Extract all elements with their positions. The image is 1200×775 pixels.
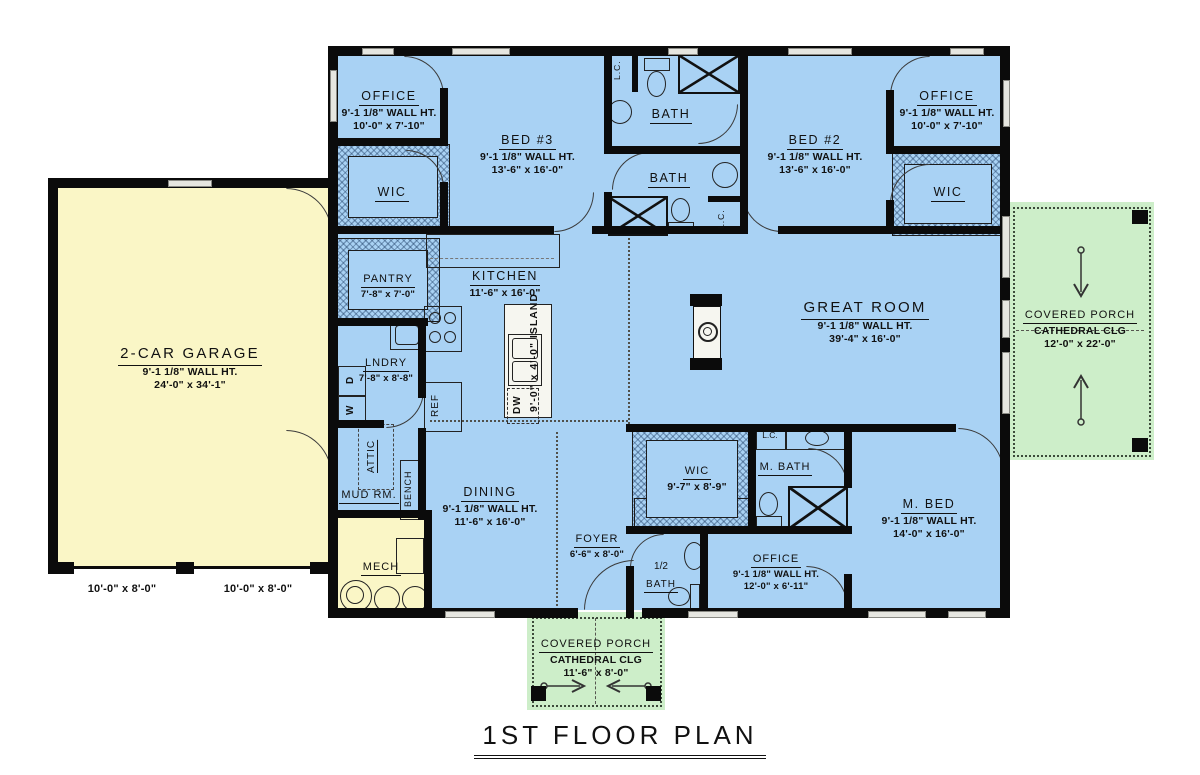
- room-wall-height: 9'-1 1/8" WALL HT.: [888, 107, 1006, 121]
- wall-halfbath-office: [700, 534, 708, 618]
- porch-arrow-up: [1070, 372, 1092, 426]
- wall-lc-lower: [708, 196, 748, 202]
- room-wall-height: 9'-1 1/8" WALL HT.: [710, 569, 842, 581]
- garage-door-dims: 10'-0" x 8'-0": [198, 582, 318, 596]
- sink: [805, 430, 829, 446]
- window: [868, 611, 926, 618]
- room-name: BATH: [650, 106, 693, 124]
- burner: [429, 312, 441, 324]
- shower: [678, 54, 740, 94]
- dishwasher-label: DW: [512, 390, 523, 420]
- garage-label: 2-CAR GARAGE 9'-1 1/8" WALL HT. 24'-0" x…: [90, 344, 290, 393]
- toilet: [644, 58, 668, 98]
- window: [688, 611, 738, 618]
- room-dims: 7'-8" x 7'-0": [340, 289, 436, 301]
- water-heater-inner: [346, 586, 364, 604]
- garage-door-right-label: 10'-0" x 8'-0": [198, 582, 318, 596]
- burner: [444, 331, 456, 343]
- room-name: M. BED: [901, 496, 958, 514]
- room-name: WIC: [375, 184, 408, 202]
- master-bed-label: M. BED 9'-1 1/8" WALL HT. 14'-0" x 16'-0…: [856, 494, 1002, 542]
- garage-door-dims: 10'-0" x 8'-0": [62, 582, 182, 596]
- wall-laundry-bottom: [328, 420, 384, 428]
- room-dims: 14'-0" x 16'-0": [856, 528, 1002, 542]
- lc-text: L.C.: [754, 430, 786, 441]
- porch-arrow-down: [1070, 246, 1092, 300]
- sink-bowl: [395, 325, 419, 345]
- wall-office-tr-bottom: [886, 146, 1010, 154]
- window: [788, 48, 852, 55]
- window: [445, 611, 495, 618]
- room-name: GREAT ROOM: [801, 298, 928, 320]
- room-name: COVERED PORCH: [1023, 308, 1137, 324]
- wall-hall: [336, 226, 554, 234]
- half-bath-label: 1/2 BATH: [636, 560, 686, 594]
- room-wall-height: 9'-1 1/8" WALL HT.: [770, 320, 960, 334]
- range-stove: [424, 306, 462, 352]
- window: [948, 611, 986, 618]
- porch-post: [646, 686, 661, 701]
- office-top-left-label: OFFICE 9'-1 1/8" WALL HT. 10'-0" x 7'-10…: [336, 86, 442, 134]
- floor-plan: COVERED PORCH CATHEDRAL CLG 12'-0" x 22'…: [0, 0, 1200, 775]
- room-name: MECH: [361, 560, 401, 576]
- foyer-label: FOYER 6'-6" x 8'-0": [558, 528, 636, 561]
- room-dims: 7'-8" x 8'-8": [340, 373, 432, 385]
- porch-door: [1002, 300, 1010, 338]
- wall-pantry-bottom: [328, 318, 428, 326]
- wall-bed3-bath: [604, 192, 612, 234]
- room-wall-height: 9'-1 1/8" WALL HT.: [336, 107, 442, 121]
- room-name: OFFICE: [359, 88, 418, 106]
- fireplace: [690, 294, 722, 370]
- room-dims: 11'-6" x 16'-0": [420, 516, 560, 530]
- garage-door-post: [48, 562, 74, 574]
- garage-door-post: [310, 562, 338, 574]
- room-dims: 39'-4" x 16'-0": [770, 333, 960, 347]
- wall-master-suite-top: [626, 424, 956, 432]
- room-wall-height: 9'-1 1/8" WALL HT.: [450, 151, 605, 165]
- room-dims: 10'-0" x 7'-10": [888, 120, 1006, 134]
- room-name: COVERED PORCH: [539, 637, 653, 653]
- burner: [429, 331, 441, 343]
- bed2-label: BED #2 9'-1 1/8" WALL HT. 13'-6" x 16'-0…: [740, 130, 890, 178]
- porch-door: [1002, 216, 1010, 278]
- plan-title-wrap: 1ST FLOOR PLAN: [420, 720, 820, 759]
- room-dims: 12'-0" x 22'-0": [1014, 338, 1146, 352]
- room-dims: 24'-0" x 34'-1": [90, 379, 290, 393]
- shower: [788, 486, 848, 530]
- laundry-label: LNDRY 7'-8" x 8'-8": [340, 352, 432, 385]
- kitchen-label: KITCHEN 11'-6" x 16'-0": [430, 266, 580, 300]
- room-wall-height: 9'-1 1/8" WALL HT.: [856, 515, 1002, 529]
- office-bottom-label: OFFICE 9'-1 1/8" WALL HT. 12'-0" x 6'-11…: [710, 548, 842, 593]
- wall-master-suite-bottom: [626, 526, 852, 534]
- room-name: BATH: [648, 170, 691, 188]
- room-dims: 12'-0" x 6'-11": [710, 581, 842, 593]
- toilet-bowl: [759, 492, 778, 516]
- porch-bottom-label: COVERED PORCH CATHEDRAL CLG 11'-6" x 8'-…: [530, 633, 662, 681]
- room-name-line2: BATH: [644, 578, 678, 593]
- wall-office-tl-bottom: [328, 138, 448, 146]
- room-dims: 10'-0" x 7'-10": [336, 120, 442, 134]
- wall-wic-right: [886, 200, 894, 234]
- room-name: OFFICE: [917, 88, 976, 106]
- window: [452, 48, 510, 55]
- room-ceiling: CATHEDRAL CLG: [530, 654, 662, 668]
- fireplace-flue-inner: [703, 327, 712, 336]
- room-name: 2-CAR GARAGE: [118, 344, 262, 366]
- room-name: OFFICE: [751, 552, 801, 568]
- burner: [444, 312, 456, 324]
- room-wall-height: 9'-1 1/8" WALL HT.: [420, 503, 560, 517]
- room-name: WIC: [683, 464, 711, 480]
- wic-right-label: WIC: [898, 182, 998, 203]
- room-dims: 6'-6" x 8'-0": [558, 549, 636, 561]
- great-room-label: GREAT ROOM 9'-1 1/8" WALL HT. 39'-4" x 1…: [770, 298, 960, 347]
- porch-post: [1132, 210, 1148, 224]
- kitchen-counter: [426, 234, 560, 268]
- room-name-line1: 1/2: [636, 560, 686, 573]
- porch-post: [1132, 438, 1148, 452]
- mech-label: MECH: [346, 556, 416, 577]
- fireplace-flue: [698, 322, 718, 342]
- wall-mwic-mbath: [748, 428, 756, 530]
- room-name: PANTRY: [361, 272, 415, 288]
- fireplace-cap: [690, 294, 722, 306]
- room-name: KITCHEN: [470, 268, 540, 286]
- room-name: WIC: [931, 184, 964, 202]
- bed3-label: BED #3 9'-1 1/8" WALL HT. 13'-6" x 16'-0…: [450, 130, 605, 178]
- mud-room-label: MUD RM.: [336, 484, 402, 505]
- refrigerator-label: REF: [430, 386, 441, 426]
- bench-label: BENCH: [403, 463, 413, 515]
- room-wall-height: 9'-1 1/8" WALL HT.: [90, 366, 290, 380]
- room-ceiling: CATHEDRAL CLG: [1014, 325, 1146, 339]
- room-name: DINING: [461, 484, 518, 502]
- room-wall-height: 9'-1 1/8" WALL HT.: [740, 151, 890, 165]
- room-name: BED #3: [499, 132, 556, 150]
- garage-wall-left: [48, 178, 58, 574]
- office-top-right-label: OFFICE 9'-1 1/8" WALL HT. 10'-0" x 7'-10…: [888, 86, 1006, 134]
- porch-post: [531, 686, 546, 701]
- room-dims: 13'-6" x 16'-0": [450, 164, 605, 178]
- room-name: BED #2: [787, 132, 844, 150]
- wall-office-bottom-right: [844, 574, 852, 618]
- toilet: [756, 492, 780, 528]
- pantry-label: PANTRY 7'-8" x 7'-0": [340, 268, 436, 301]
- wall-mech-top: [328, 510, 432, 518]
- window: [362, 48, 394, 55]
- fireplace-cap: [690, 358, 722, 370]
- wall-bath-bath: [604, 146, 748, 154]
- window: [668, 48, 698, 55]
- window: [168, 180, 212, 187]
- linen-closet-label: L.C.: [754, 430, 786, 441]
- wall-lc-upper: [632, 46, 638, 92]
- bath-lower-label: BATH: [638, 168, 700, 189]
- linen-closet-label: L.C.: [612, 52, 622, 88]
- wall-halfbath-left: [626, 566, 634, 618]
- room-name: FOYER: [574, 532, 621, 548]
- plan-title: 1ST FLOOR PLAN: [474, 720, 765, 759]
- garage-door-post: [176, 562, 194, 574]
- master-wic-label: WIC 9'-7" x 8'-9": [650, 460, 744, 494]
- room-name: M. BATH: [758, 460, 813, 476]
- toilet-tank: [690, 584, 700, 609]
- dining-label: DINING 9'-1 1/8" WALL HT. 11'-6" x 16'-0…: [420, 482, 560, 530]
- room-dims: 13'-6" x 16'-0": [740, 164, 890, 178]
- toilet-tank: [644, 58, 670, 71]
- garage-door-left-label: 10'-0" x 8'-0": [62, 582, 182, 596]
- linen-closet-label: L.C.: [716, 204, 726, 234]
- room-dims: 11'-6" x 16'-0": [430, 287, 580, 301]
- master-bath-label: M. BATH: [752, 456, 818, 477]
- toilet-bowl: [647, 71, 666, 97]
- sink: [712, 162, 738, 188]
- window: [950, 48, 984, 55]
- room-name: MUD RM.: [339, 488, 398, 504]
- wic-left-label: WIC: [352, 182, 432, 203]
- kitchen-greatroom-opening: [628, 238, 630, 424]
- room-dims: 9'-7" x 8'-9": [650, 481, 744, 495]
- room-dims: 11'-6" x 8'-0": [530, 667, 662, 681]
- island-label: 9'-0" x 4'-0" ISLAND: [528, 308, 540, 412]
- wall-mbath-mbed: [844, 428, 852, 488]
- wall-bed3-bath: [604, 46, 612, 152]
- attic-label: ATTIC: [366, 428, 377, 484]
- washer-label: W: [345, 400, 356, 420]
- room-name: LNDRY: [363, 356, 409, 372]
- porch-door: [1002, 352, 1010, 414]
- toilet-bowl: [671, 198, 690, 222]
- porch-right-label: COVERED PORCH CATHEDRAL CLG 12'-0" x 22'…: [1014, 304, 1146, 352]
- bath-upper-label: BATH: [640, 104, 702, 125]
